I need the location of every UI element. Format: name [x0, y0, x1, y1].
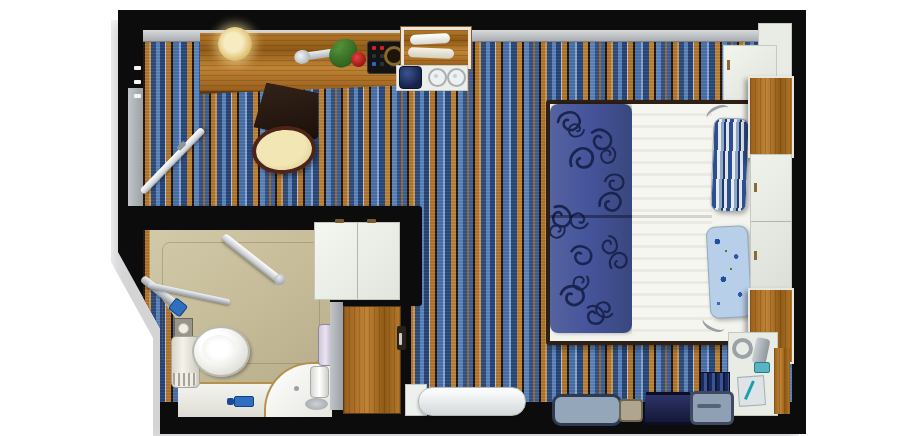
runner-swirl-pattern: [550, 104, 632, 333]
cabin-plan: [118, 10, 806, 434]
toilet-paper-holder: [174, 318, 193, 337]
glass: [428, 68, 447, 87]
glass: [447, 68, 466, 87]
bed: [546, 100, 758, 345]
mattress-split: [550, 215, 632, 218]
wood-floor-strip: [774, 348, 790, 414]
floral-pillow: [706, 225, 753, 319]
ice-bucket: [399, 66, 422, 89]
floor-mat: [642, 392, 694, 425]
bedside-cabinets: [750, 154, 792, 290]
entry-door-frame: [330, 302, 343, 410]
entry-door: [343, 306, 401, 414]
water-heater-base: [305, 398, 328, 410]
floor-mat: [690, 391, 734, 425]
wardrobe: [314, 222, 400, 300]
overhead-shelf: [748, 76, 794, 158]
toilet: [192, 326, 250, 377]
floor-mat: [552, 394, 622, 426]
desk-lamp: [218, 27, 252, 61]
bench: [418, 387, 526, 416]
notepad-with-pen: [737, 375, 766, 407]
rose: [351, 52, 366, 67]
duvet: [632, 104, 712, 333]
amenity-item: [754, 362, 770, 373]
striped-pillow: [710, 117, 749, 212]
floor-mat: [619, 399, 643, 422]
entry-door-handle: [397, 326, 406, 350]
hinge-mark: [134, 94, 141, 98]
bathroom-wall: [138, 206, 316, 230]
minibar-tray: [401, 27, 471, 69]
hinge-mark: [134, 80, 141, 84]
hinge-mark: [134, 66, 141, 70]
bed-runner: [550, 104, 632, 333]
water-heater: [310, 366, 329, 398]
floorplan-stage: [0, 0, 920, 436]
faucet: [234, 396, 254, 407]
